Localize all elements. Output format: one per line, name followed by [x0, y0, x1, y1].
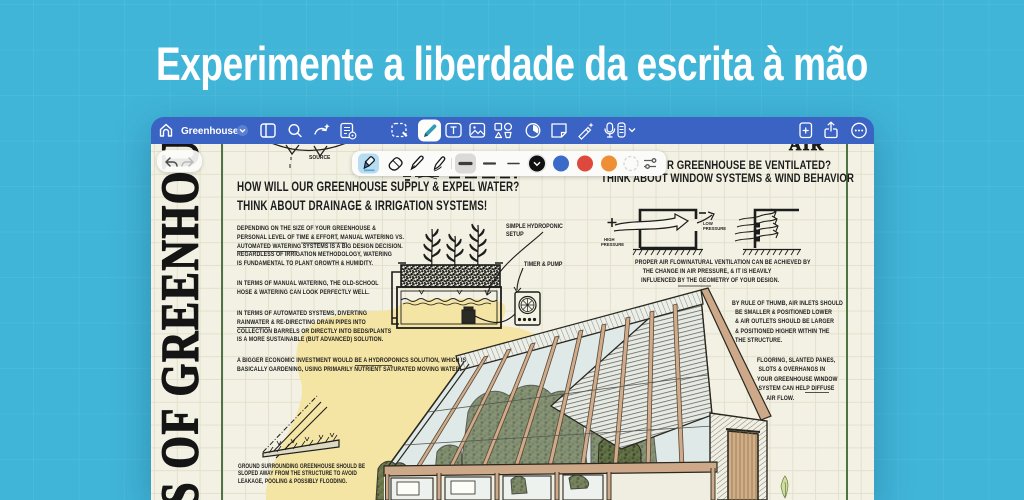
- svg-text:PRESSURE: PRESSURE: [703, 226, 726, 231]
- svg-text:SOURCE: SOURCE: [309, 155, 331, 161]
- svg-text:Greenhouse: Greenhouse: [181, 126, 239, 137]
- svg-text:PRESSURE: PRESSURE: [601, 242, 624, 247]
